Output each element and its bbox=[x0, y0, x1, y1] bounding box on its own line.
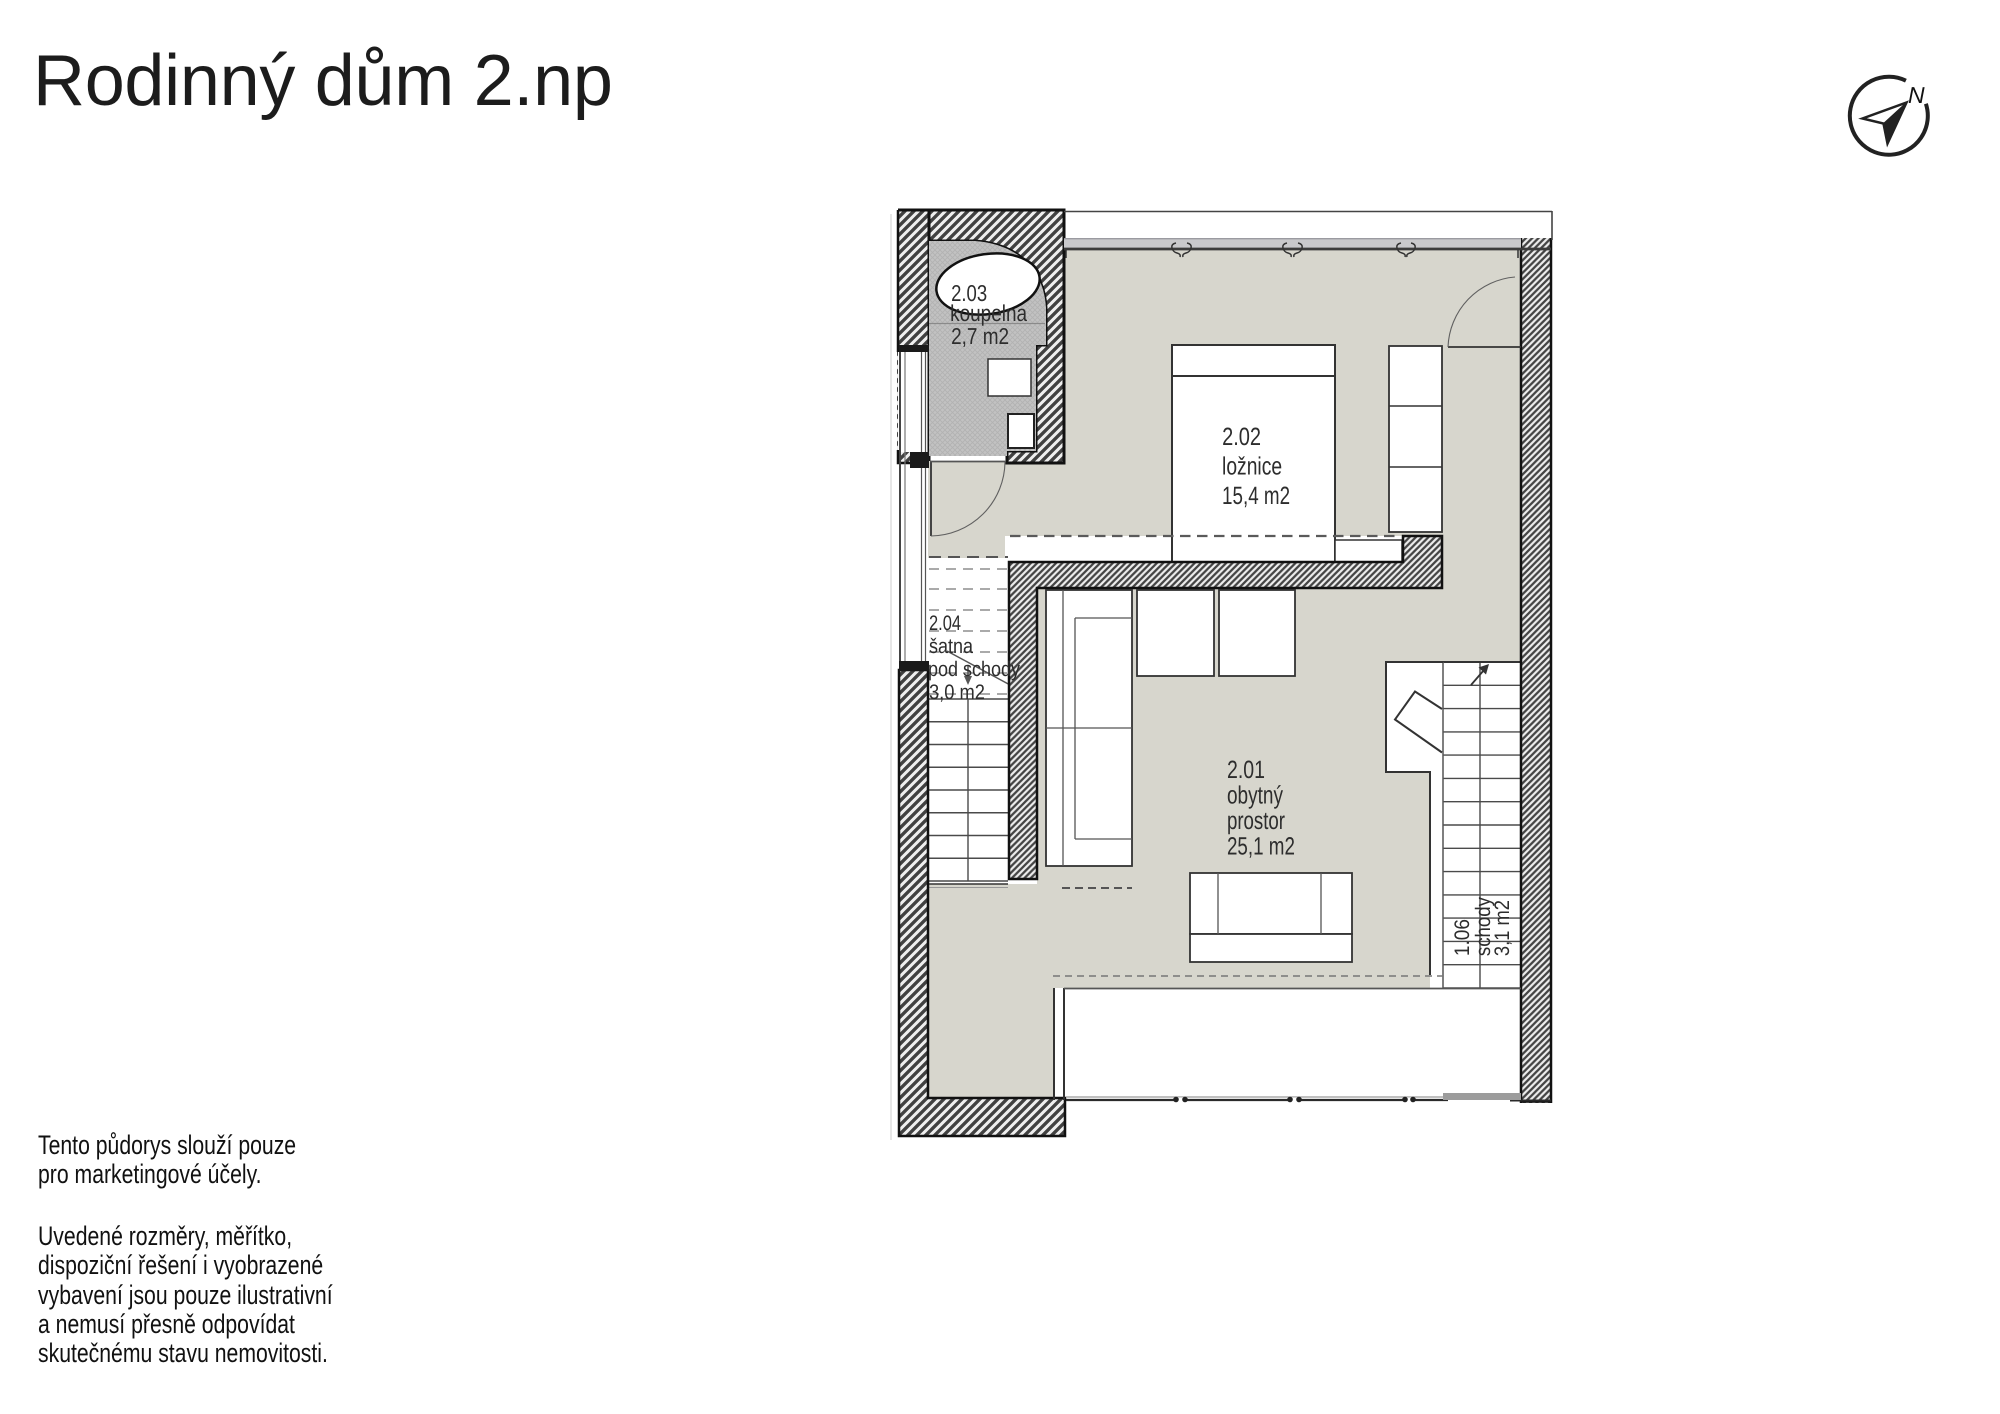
svg-text:3,1 m2: 3,1 m2 bbox=[1491, 900, 1514, 956]
svg-text:15,4 m2: 15,4 m2 bbox=[1222, 482, 1290, 510]
svg-text:25,1 m2: 25,1 m2 bbox=[1227, 833, 1295, 861]
svg-text:1.06: 1.06 bbox=[1451, 919, 1474, 956]
svg-text:2.02: 2.02 bbox=[1222, 423, 1261, 451]
svg-text:ložnice: ložnice bbox=[1222, 453, 1282, 481]
svg-text:3,0 m2: 3,0 m2 bbox=[929, 681, 985, 704]
svg-text:2.01: 2.01 bbox=[1227, 756, 1265, 784]
svg-text:obytný: obytný bbox=[1227, 782, 1283, 810]
svg-text:2,7 m2: 2,7 m2 bbox=[951, 323, 1009, 349]
svg-text:N: N bbox=[1908, 82, 1925, 108]
svg-text:šatna: šatna bbox=[929, 635, 973, 658]
svg-text:pod schody: pod schody bbox=[928, 658, 1020, 681]
svg-text:2.04: 2.04 bbox=[929, 612, 961, 635]
svg-text:prostor: prostor bbox=[1227, 807, 1285, 835]
